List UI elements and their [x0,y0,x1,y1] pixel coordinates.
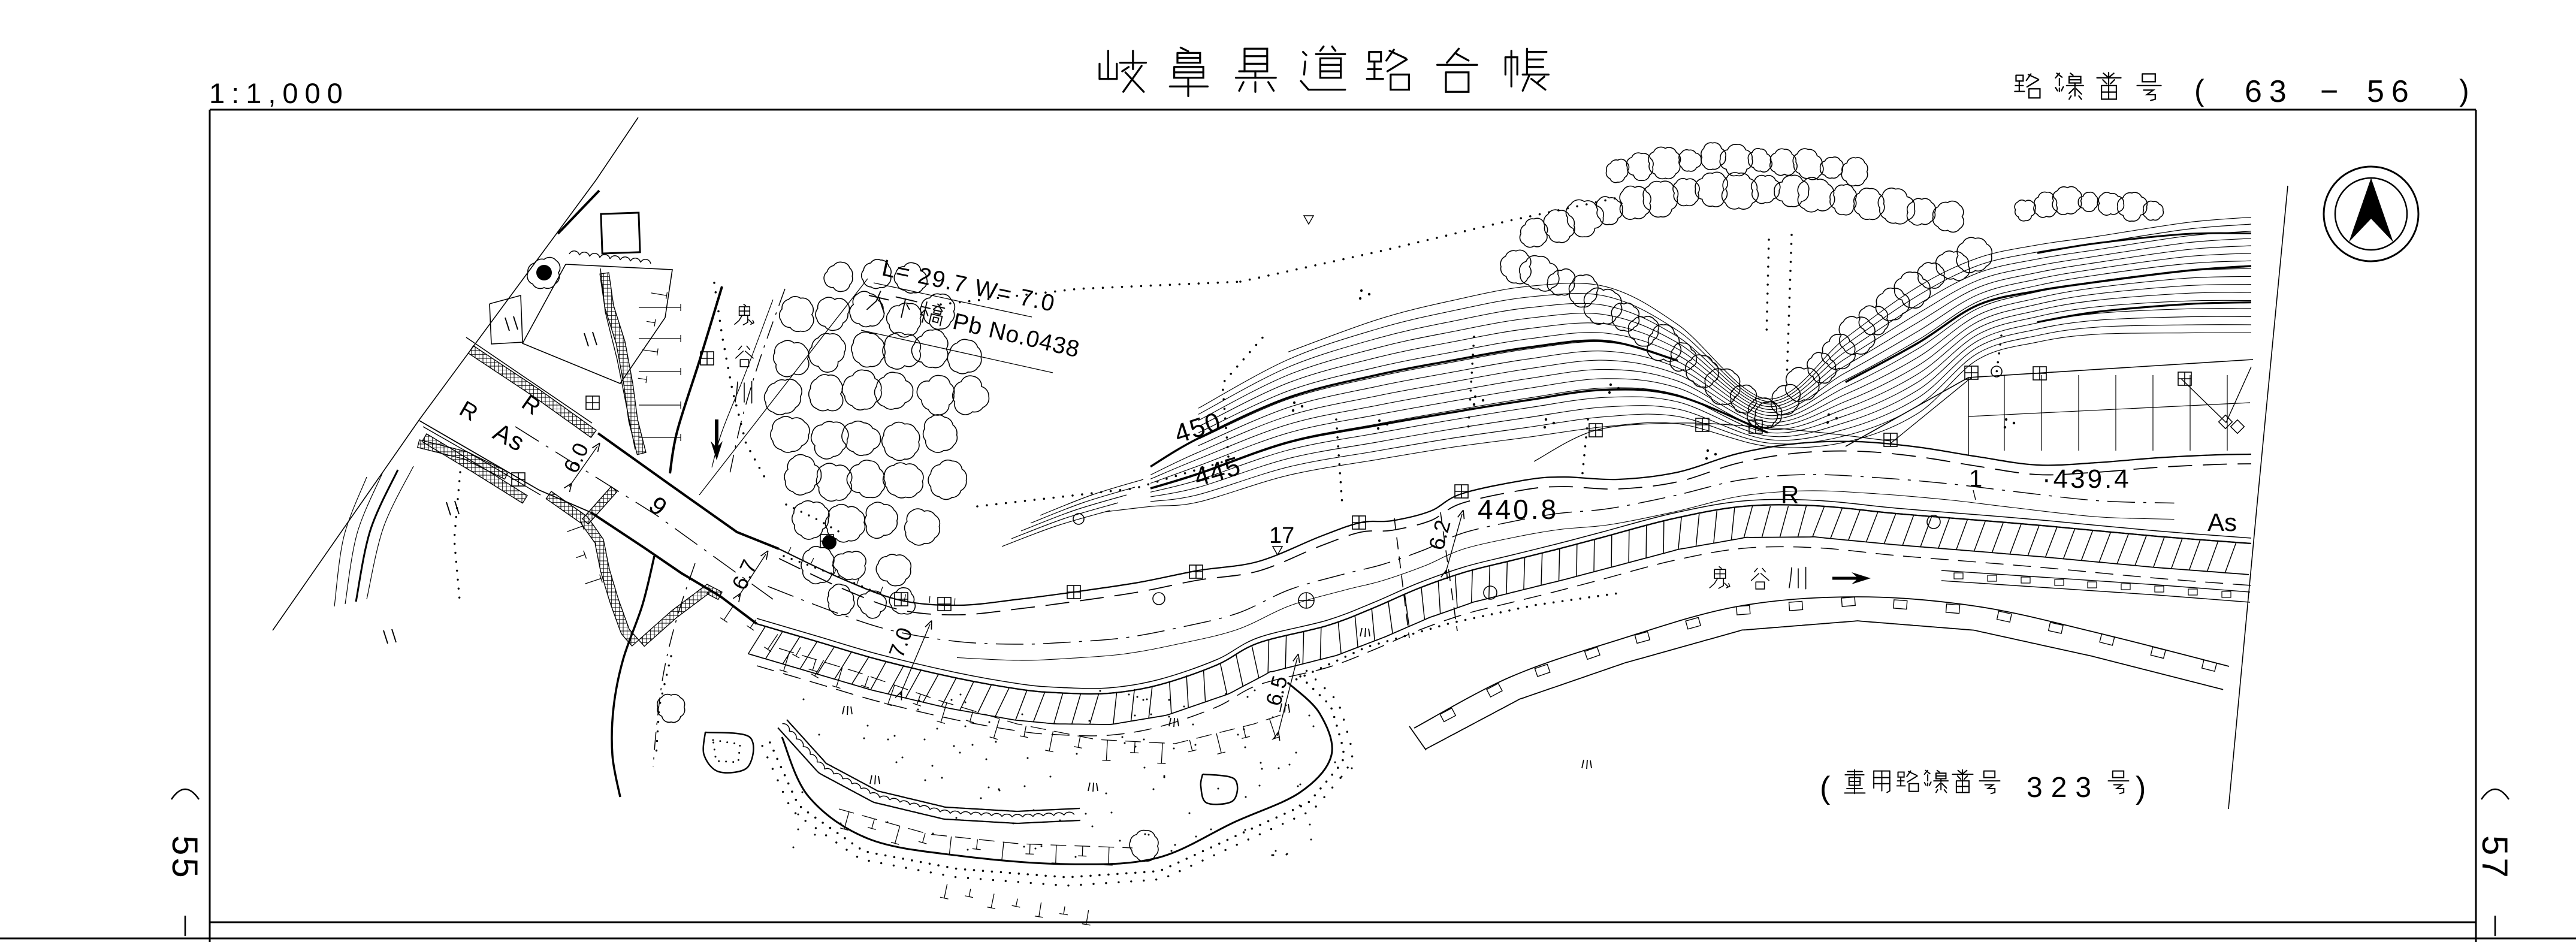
svg-text:(: ( [2194,74,2204,107]
svg-text:As: As [2207,508,2237,536]
svg-text:55: 55 [165,835,205,880]
svg-text:57: 57 [2475,835,2515,880]
svg-text:(: ( [1820,771,1831,805]
svg-text:440.8: 440.8 [1478,494,1559,525]
svg-text:63: 63 [2245,74,2294,109]
svg-text:): ) [2136,771,2146,805]
svg-text:323: 323 [2027,772,2100,804]
svg-text:): ) [2459,74,2469,107]
svg-text:·439.4: ·439.4 [2042,464,2131,494]
svg-text:1:1,000: 1:1,000 [209,77,349,109]
svg-text:1: 1 [1969,466,1982,492]
svg-text:56: 56 [2367,74,2416,109]
svg-text:17: 17 [1269,523,1294,548]
svg-text:−: − [2320,74,2338,109]
svg-text:R: R [1781,481,1799,509]
